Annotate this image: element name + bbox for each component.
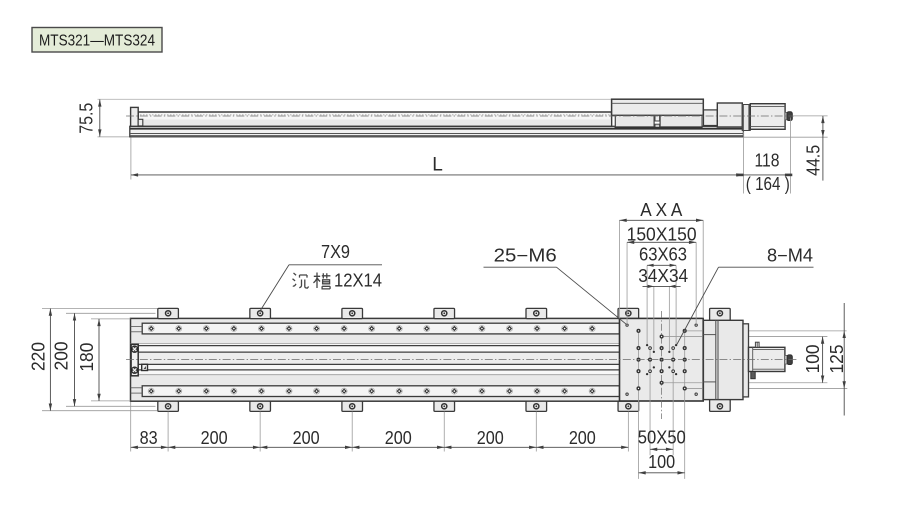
svg-text:100: 100 [803,344,823,373]
svg-text:200: 200 [201,428,228,448]
svg-text:150X150: 150X150 [627,224,697,244]
svg-text:63X63: 63X63 [639,245,687,265]
svg-text:118: 118 [755,151,780,171]
svg-text:44.5: 44.5 [804,145,824,176]
svg-text:7X9: 7X9 [321,242,350,262]
svg-text:50X50: 50X50 [638,428,686,448]
svg-text:34X34: 34X34 [638,266,688,286]
svg-text:( 164 ): ( 164 ) [746,174,790,194]
svg-text:125: 125 [827,345,847,374]
svg-text:200: 200 [52,341,72,370]
svg-text:200: 200 [385,428,412,448]
svg-text:A X A: A X A [640,200,682,220]
svg-text:75.5: 75.5 [77,103,97,134]
svg-text:200: 200 [477,428,504,448]
svg-text:L: L [432,155,443,176]
svg-text:200: 200 [293,428,320,448]
svg-text:180: 180 [77,343,97,372]
svg-text:MTS321—MTS324: MTS321—MTS324 [39,33,155,50]
svg-text:25−M6: 25−M6 [494,246,557,266]
svg-text:200: 200 [569,428,596,448]
svg-text:8−M4: 8−M4 [767,246,813,266]
svg-text:83: 83 [140,428,158,448]
svg-text:100: 100 [648,452,675,472]
svg-text:12X14: 12X14 [334,270,382,290]
svg-text:220: 220 [29,342,49,371]
